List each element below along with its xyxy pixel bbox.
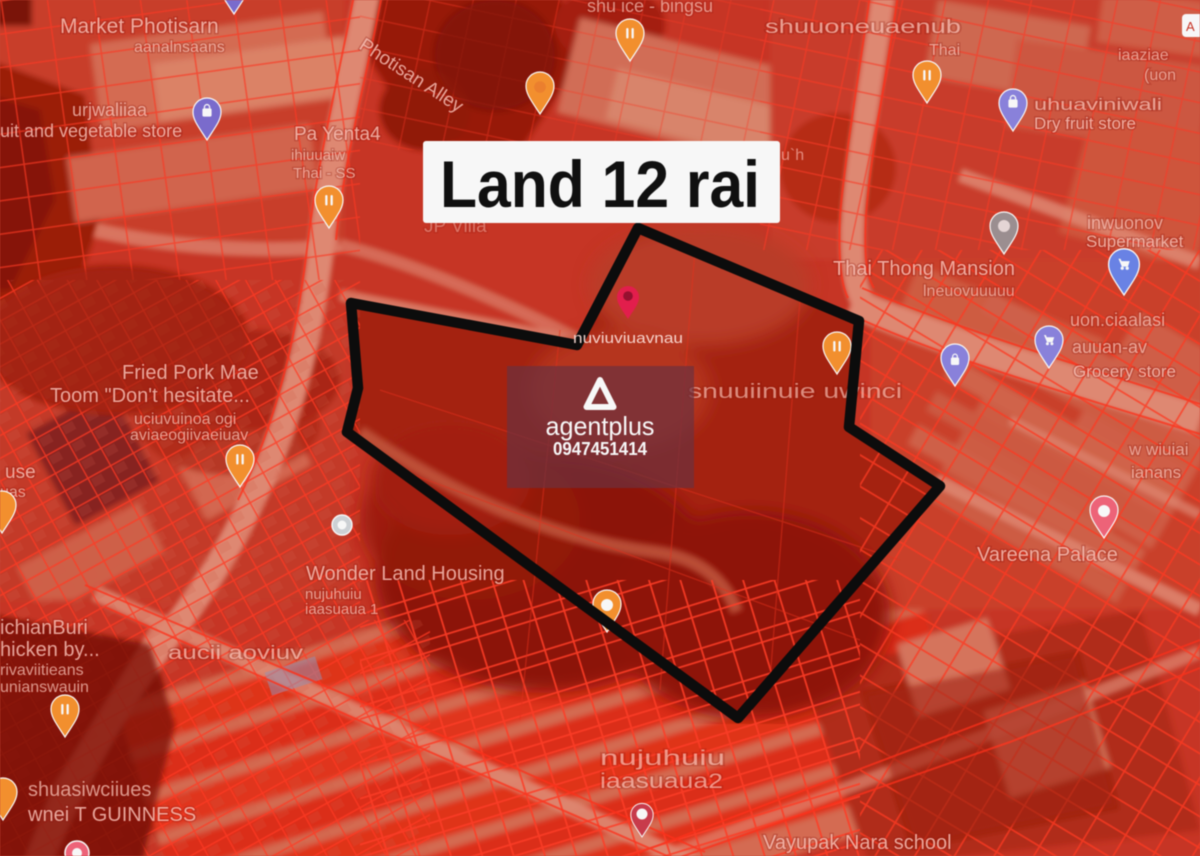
svg-text:Thai - SS: Thai - SS (293, 165, 356, 182)
svg-text:use: use (5, 462, 36, 483)
svg-text:iaasuaua 1: iaasuaua 1 (305, 601, 378, 618)
svg-text:uciuvuinoa ogi: uciuvuinoa ogi (134, 411, 236, 428)
svg-text:agentplus: agentplus (546, 411, 655, 441)
svg-text:shuuoneuaenub: shuuoneuaenub (765, 17, 961, 38)
svg-text:auuan-av: auuan-av (1072, 337, 1147, 357)
svg-text:ianans: ianans (1131, 463, 1181, 482)
svg-text:ihiuuaiw: ihiuuaiw (291, 147, 345, 164)
svg-text:urjwaliiaa: urjwaliiaa (72, 100, 148, 120)
svg-text:Vareena Palace: Vareena Palace (977, 544, 1118, 566)
svg-text:aucii aoviuv: aucii aoviuv (168, 643, 304, 664)
svg-text:Thai: Thai (929, 42, 960, 59)
svg-text:shu ice - bingsu: shu ice - bingsu (587, 0, 713, 16)
svg-text:Supermarket: Supermarket (1086, 232, 1184, 251)
svg-text:Grocery store: Grocery store (1073, 362, 1176, 381)
svg-text:u`h: u`h (781, 147, 804, 164)
svg-text:iaasuaua2: iaasuaua2 (600, 770, 723, 793)
svg-text:aanalnsaans: aanalnsaans (134, 39, 225, 56)
svg-text:(uon: (uon (1144, 67, 1176, 84)
svg-text:Pa Yenta4: Pa Yenta4 (294, 124, 381, 145)
svg-text:Toom "Don't hesitate...: Toom "Don't hesitate... (50, 385, 250, 407)
svg-text:Land 12 rai: Land 12 rai (440, 147, 760, 221)
svg-text:Thai Thong Mansion: Thai Thong Mansion (833, 258, 1015, 280)
svg-text:unianswauin: unianswauin (0, 679, 89, 696)
svg-text:aviaeogiivaeiuav: aviaeogiivaeiuav (130, 427, 248, 444)
svg-text:snuuiinuie uwinci: snuuiinuie uwinci (688, 381, 902, 403)
svg-text:w wiuiai: w wiuiai (1128, 440, 1189, 459)
svg-text:nuviuviuavnau: nuviuviuavnau (573, 330, 683, 347)
svg-text:hicken by...: hicken by... (0, 639, 100, 661)
svg-text:uit and vegetable store: uit and vegetable store (0, 121, 182, 141)
svg-text:Wonder Land Housing: Wonder Land Housing (306, 563, 505, 585)
svg-text:Dry fruit store: Dry fruit store (1034, 114, 1136, 133)
svg-text:Market Photisarn: Market Photisarn (60, 15, 219, 38)
svg-text:0947451414: 0947451414 (553, 439, 647, 459)
svg-text:shuasiwciiues: shuasiwciiues (28, 779, 151, 801)
svg-text:rivaviitieans: rivaviitieans (0, 662, 84, 679)
svg-text:iaaziae: iaaziae (1118, 47, 1169, 64)
svg-text:uhuaviniwali: uhuaviniwali (1034, 95, 1162, 114)
svg-text:uon.ciaalasi: uon.ciaalasi (1070, 310, 1165, 330)
svg-text:Fried Pork Mae: Fried Pork Mae (122, 362, 259, 384)
svg-text:inwuonov: inwuonov (1087, 213, 1163, 233)
svg-text:ichianBuri: ichianBuri (0, 617, 88, 639)
svg-text:lneuovuuuuu: lneuovuuuuu (923, 283, 1015, 300)
svg-text:Vayupak Nara school: Vayupak Nara school (763, 832, 952, 854)
svg-text:A: A (1186, 19, 1195, 34)
svg-text:nujuhuiu: nujuhuiu (600, 747, 725, 770)
svg-text:wnei T GUINNESS: wnei T GUINNESS (27, 804, 196, 826)
